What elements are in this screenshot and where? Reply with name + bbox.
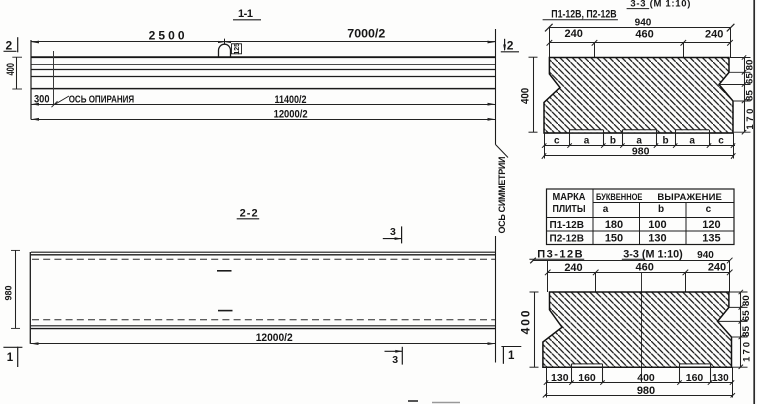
svg-text:400: 400 bbox=[637, 372, 655, 384]
svg-text:120: 120 bbox=[702, 219, 720, 231]
svg-text:940: 940 bbox=[697, 250, 714, 261]
svg-text:3: 3 bbox=[390, 226, 396, 238]
svg-text:130: 130 bbox=[648, 233, 666, 245]
svg-text:7000/2: 7000/2 bbox=[347, 29, 385, 41]
svg-text:300: 300 bbox=[34, 94, 50, 106]
svg-text:100: 100 bbox=[648, 219, 666, 231]
svg-text:980: 980 bbox=[4, 286, 15, 301]
svg-text:85: 85 bbox=[741, 325, 752, 337]
svg-text:1: 1 bbox=[7, 352, 14, 364]
svg-text:130: 130 bbox=[551, 372, 569, 384]
svg-text:150: 150 bbox=[605, 233, 623, 245]
svg-text:3: 3 bbox=[392, 354, 398, 366]
svg-text:а: а bbox=[603, 204, 609, 215]
svg-text:460: 460 bbox=[636, 262, 654, 274]
svg-text:400: 400 bbox=[520, 88, 532, 104]
svg-text:460: 460 bbox=[635, 28, 653, 40]
svg-text:П3-12В: П3-12В bbox=[537, 248, 582, 260]
svg-text:11400/2: 11400/2 bbox=[275, 94, 307, 106]
svg-text:130: 130 bbox=[712, 373, 729, 384]
svg-text:b: b bbox=[662, 135, 668, 146]
svg-text:12000/2: 12000/2 bbox=[274, 108, 308, 120]
svg-text:с: с bbox=[718, 135, 724, 146]
svg-text:П1-12В, П2-12В: П1-12В, П2-12В bbox=[551, 9, 616, 21]
svg-text:2: 2 bbox=[507, 39, 514, 53]
svg-text:2: 2 bbox=[6, 39, 13, 53]
svg-text:12000/2: 12000/2 bbox=[256, 332, 293, 344]
svg-text:160: 160 bbox=[578, 372, 596, 384]
svg-text:а: а bbox=[689, 135, 695, 146]
svg-text:170: 170 bbox=[742, 342, 753, 362]
svg-text:П1-12В: П1-12В bbox=[550, 219, 585, 231]
svg-text:с: с bbox=[706, 204, 712, 215]
svg-text:125: 125 bbox=[234, 43, 241, 55]
svg-text:ОСЬ СИММЕТРИИ: ОСЬ СИММЕТРИИ bbox=[497, 157, 507, 234]
svg-text:МАРКА: МАРКА bbox=[553, 192, 586, 203]
svg-text:1: 1 bbox=[508, 350, 515, 362]
svg-text:с: с bbox=[554, 135, 560, 146]
svg-text:135: 135 bbox=[702, 233, 720, 245]
svg-text:3-3 (М 1:10): 3-3 (М 1:10) bbox=[630, 0, 690, 10]
svg-text:65: 65 bbox=[741, 310, 752, 322]
svg-text:а: а bbox=[584, 135, 590, 146]
svg-text:b: b bbox=[610, 135, 616, 146]
svg-text:240: 240 bbox=[708, 262, 726, 274]
svg-text:П2-12В: П2-12В bbox=[550, 233, 585, 245]
svg-text:240: 240 bbox=[565, 28, 583, 40]
svg-text:2-2: 2-2 bbox=[240, 207, 258, 219]
svg-text:ВЫРАЖЕНИЕ: ВЫРАЖЕНИЕ bbox=[657, 192, 722, 203]
svg-text:БУКВЕННОЕ: БУКВЕННОЕ bbox=[596, 192, 642, 203]
svg-text:ОСЬ ОПИРАНИЯ: ОСЬ ОПИРАНИЯ bbox=[69, 94, 135, 106]
svg-text:980: 980 bbox=[632, 146, 650, 158]
svg-text:3-3 (М 1:10): 3-3 (М 1:10) bbox=[623, 248, 683, 260]
svg-text:400: 400 bbox=[519, 310, 533, 334]
svg-text:160: 160 bbox=[686, 372, 704, 384]
svg-text:400: 400 bbox=[5, 63, 17, 76]
svg-text:ПЛИТЫ: ПЛИТЫ bbox=[553, 204, 586, 215]
svg-text:80: 80 bbox=[741, 295, 752, 306]
svg-text:940: 940 bbox=[635, 18, 652, 29]
svg-text:180: 180 bbox=[605, 219, 623, 231]
svg-text:980: 980 bbox=[637, 385, 655, 397]
svg-text:b: b bbox=[658, 204, 664, 215]
svg-text:240: 240 bbox=[705, 29, 723, 41]
svg-text:1-1: 1-1 bbox=[238, 8, 253, 20]
